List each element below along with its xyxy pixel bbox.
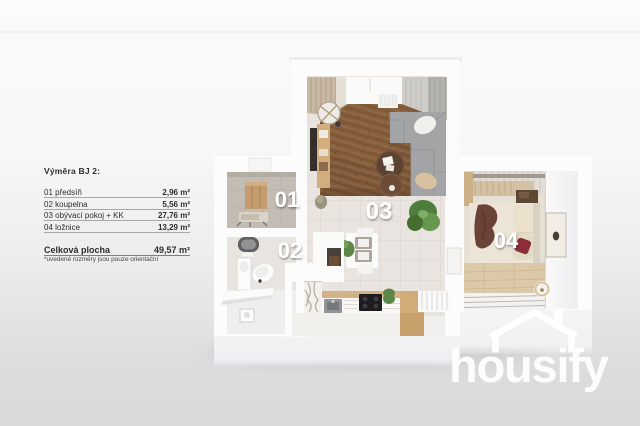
svg-text:03: 03 [366, 198, 393, 225]
svg-text:04: 04 [494, 228, 519, 253]
svg-text:02: 02 [278, 238, 302, 263]
svg-text:01: 01 [275, 187, 299, 212]
